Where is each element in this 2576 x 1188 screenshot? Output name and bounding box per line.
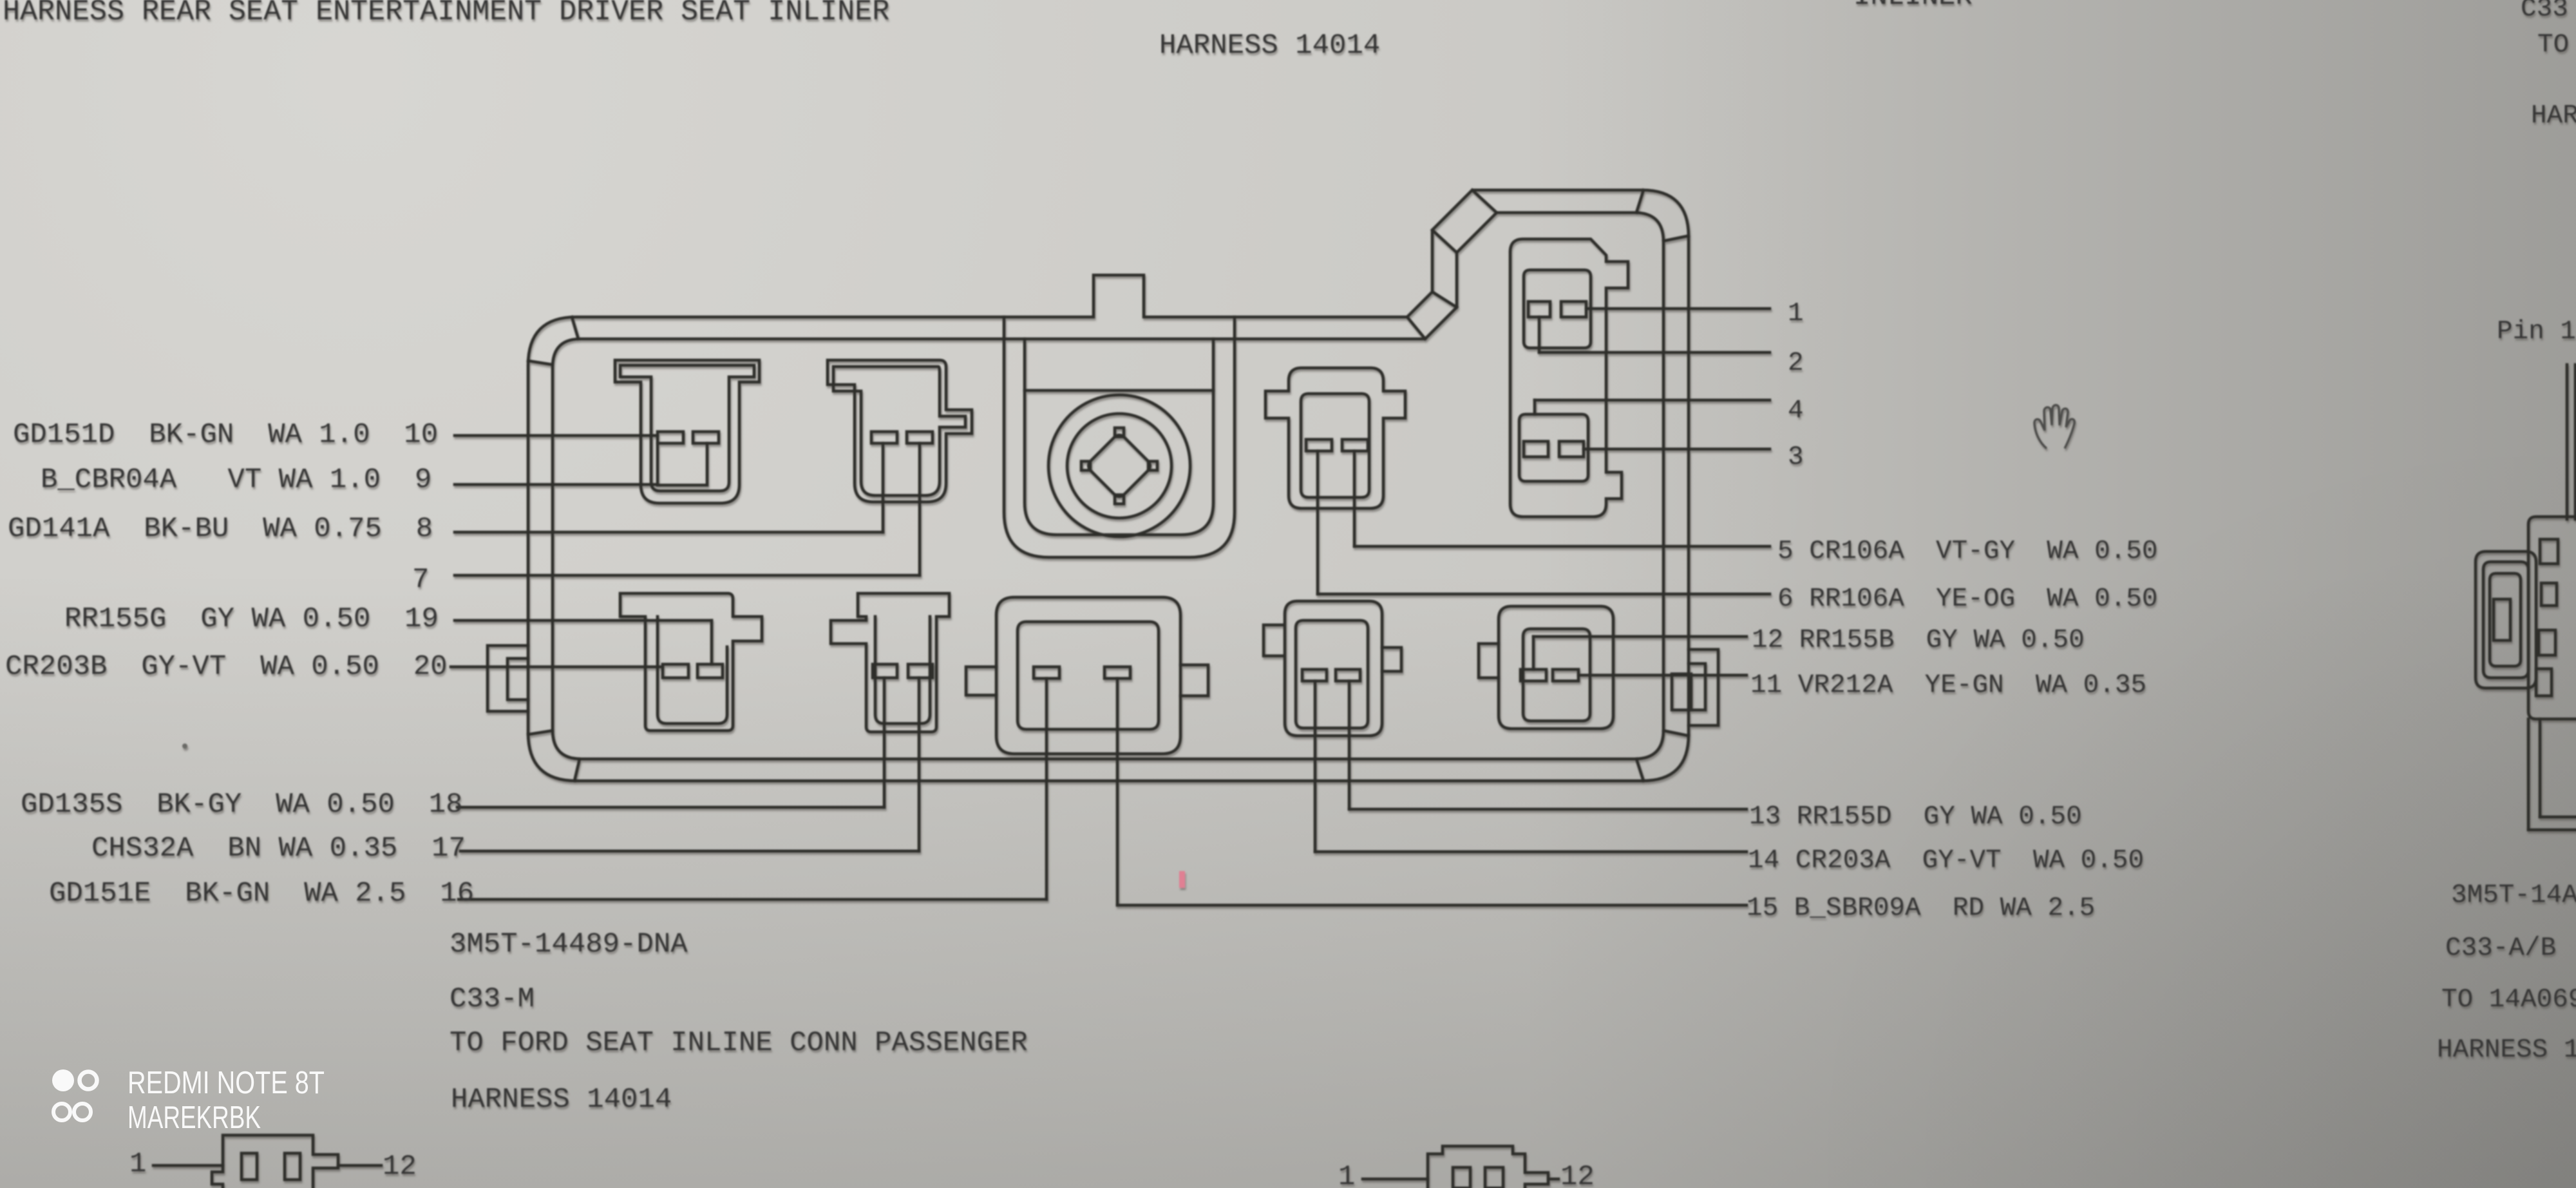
svg-text:3M5T-14489-DNA: 3M5T-14489-DNA [450,928,688,961]
svg-text:1: 1 [129,1148,146,1180]
svg-text:REDMI NOTE 8T: REDMI NOTE 8T [128,1066,325,1100]
svg-text:12 RR155B GY WA 0.50: 12 RR155B GY WA 0.50 [1752,626,2085,655]
svg-text:4: 4 [1788,396,1804,426]
svg-text:2: 2 [1788,349,1804,378]
svg-text:7: 7 [412,564,429,596]
svg-text:GD135S BK-GY WA 0.50 18: GD135S BK-GY WA 0.50 18 [21,789,463,821]
svg-text:MAREKRBK: MAREKRBK [128,1100,261,1135]
svg-text:11 VR212A YE-GN WA 0.35: 11 VR212A YE-GN WA 0.35 [1750,671,2146,700]
svg-text:TO FORD SEAT INLINE CONN PASSE: TO FORD SEAT INLINE CONN PASSENGER [450,1027,1028,1059]
svg-text:TO RE: TO RE [2537,30,2576,60]
svg-text:15 B_SBR09A RD WA 2.5: 15 B_SBR09A RD WA 2.5 [1747,894,2095,923]
svg-text:CHS32A BN WA 0.35 17: CHS32A BN WA 0.35 17 [91,832,466,865]
svg-text:5 CR106A VT-GY WA 0.50: 5 CR106A VT-GY WA 0.50 [1777,537,2158,566]
svg-text:HARNESS 14014: HARNESS 14014 [451,1084,672,1116]
svg-text:14 CR203A GY-VT WA 0.50: 14 CR203A GY-VT WA 0.50 [1748,846,2144,876]
svg-text:GD151D BK-GN WA 1.0 10: GD151D BK-GN WA 1.0 10 [13,419,438,451]
svg-text:GD141A BK-BU WA 0.75 8: GD141A BK-BU WA 0.75 8 [8,513,433,545]
svg-text:TO 14A069: TO 14A069 [2441,985,2576,1015]
svg-text:HARNESS 14014: HARNESS 14014 [1159,30,1380,62]
svg-text:B_CBR04A VT WA 1.0 9: B_CBR04A VT WA 1.0 9 [41,464,431,496]
svg-text:C33: C33 [2521,0,2568,24]
svg-text:6 RR106A YE-OG WA 0.50: 6 RR106A YE-OG WA 0.50 [1777,584,2158,614]
svg-text:HARNESS 14: HARNESS 14 [2437,1035,2576,1065]
svg-text:INLINER: INLINER [1853,0,1973,13]
svg-text:HARNESS REAR SEAT ENTERTAINMEN: HARNESS REAR SEAT ENTERTAINMENT DRIVER S… [3,0,889,28]
svg-text:C33-A/B: C33-A/B [2445,934,2556,963]
svg-text:13 RR155D GY WA 0.50: 13 RR155D GY WA 0.50 [1749,802,2082,832]
svg-text:C33-M: C33-M [450,983,535,1015]
svg-text:1: 1 [1338,1161,1355,1188]
svg-text:Pin 1: Pin 1 [2497,317,2576,347]
svg-text:1: 1 [1788,299,1804,329]
svg-text:3M5T-14A06: 3M5T-14A06 [2451,881,2576,910]
svg-text:RR155G GY WA 0.50 19: RR155G GY WA 0.50 19 [64,603,439,635]
svg-text:12: 12 [383,1151,417,1183]
svg-text:HARNE: HARNE [2531,101,2576,131]
svg-text:CR203B GY-VT WA 0.50 20: CR203B GY-VT WA 0.50 20 [5,651,448,683]
svg-text:3: 3 [1788,443,1804,472]
svg-text:12: 12 [1560,1161,1595,1188]
svg-text:GD151E BK-GN WA 2.5 16: GD151E BK-GN WA 2.5 16 [49,877,474,910]
